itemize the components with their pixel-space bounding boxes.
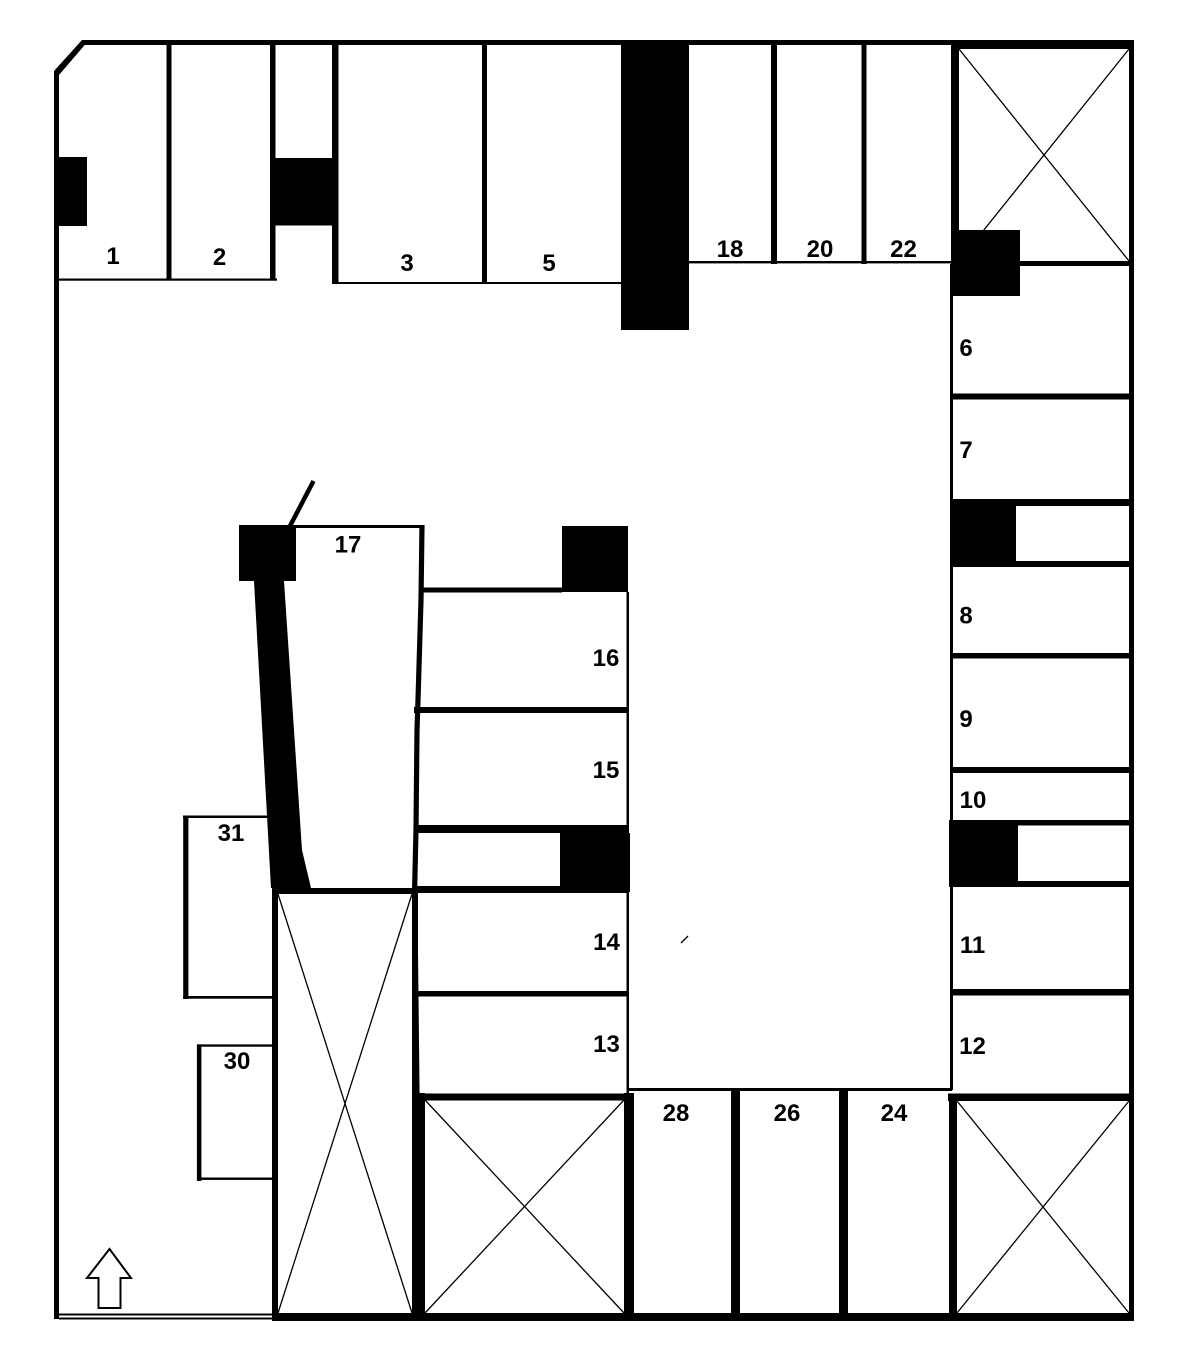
svg-text:3: 3 bbox=[400, 250, 413, 277]
svg-text:9: 9 bbox=[959, 706, 972, 733]
svg-text:15: 15 bbox=[593, 757, 620, 784]
svg-text:1: 1 bbox=[106, 243, 119, 270]
svg-text:13: 13 bbox=[593, 1031, 620, 1058]
svg-text:10: 10 bbox=[960, 787, 987, 814]
svg-text:8: 8 bbox=[959, 603, 972, 630]
svg-text:11: 11 bbox=[960, 932, 985, 959]
svg-text:5: 5 bbox=[542, 250, 555, 277]
svg-text:18: 18 bbox=[717, 236, 744, 263]
svg-text:6: 6 bbox=[959, 335, 972, 362]
svg-text:12: 12 bbox=[959, 1033, 986, 1060]
svg-text:16: 16 bbox=[593, 645, 620, 672]
svg-text:31: 31 bbox=[218, 820, 245, 847]
svg-text:26: 26 bbox=[774, 1100, 801, 1127]
svg-text:7: 7 bbox=[959, 437, 972, 464]
svg-text:28: 28 bbox=[663, 1100, 690, 1127]
svg-text:2: 2 bbox=[213, 244, 226, 271]
svg-text:22: 22 bbox=[890, 236, 917, 263]
svg-text:14: 14 bbox=[593, 929, 620, 956]
svg-text:24: 24 bbox=[881, 1100, 908, 1127]
svg-text:17: 17 bbox=[335, 532, 362, 559]
svg-text:30: 30 bbox=[224, 1048, 251, 1075]
svg-text:20: 20 bbox=[807, 236, 834, 263]
